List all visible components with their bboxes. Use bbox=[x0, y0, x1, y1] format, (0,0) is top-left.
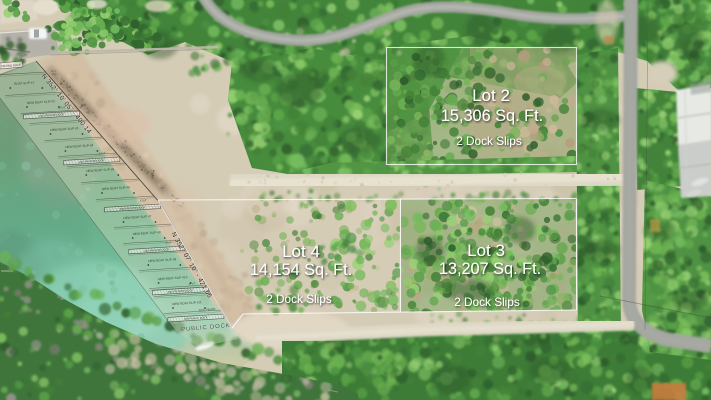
svg-text:47'x7': 47'x7' bbox=[165, 240, 173, 245]
svg-text:Lot 3: Lot 3 bbox=[467, 241, 505, 260]
svg-text:14,154 Sq. Ft.: 14,154 Sq. Ft. bbox=[250, 261, 352, 279]
svg-text:2 Dock Slips: 2 Dock Slips bbox=[454, 295, 520, 309]
svg-text:47'x7': 47'x7' bbox=[140, 198, 148, 203]
svg-text:13,207 Sq. Ft.: 13,207 Sq. Ft. bbox=[439, 260, 541, 278]
svg-text:47'x7': 47'x7' bbox=[99, 151, 107, 156]
svg-text:Lot 4: Lot 4 bbox=[282, 242, 320, 261]
svg-text:2 Dock Slips: 2 Dock Slips bbox=[266, 292, 332, 306]
svg-text:2 Dock Slips: 2 Dock Slips bbox=[456, 134, 522, 148]
svg-text:Lot 2: Lot 2 bbox=[472, 86, 510, 105]
svg-text:47'x7': 47'x7' bbox=[188, 281, 196, 286]
svg-text:15,306 Sq. Ft.: 15,306 Sq. Ft. bbox=[441, 107, 543, 125]
